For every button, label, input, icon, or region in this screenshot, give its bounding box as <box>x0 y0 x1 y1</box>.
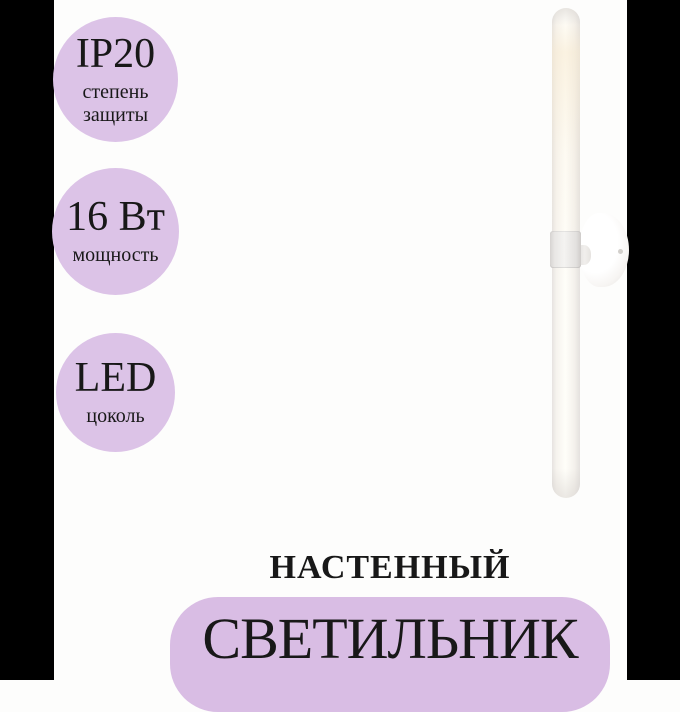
ip-rating-caption-line1: степень <box>83 81 149 103</box>
lamp-mount-screw <box>618 249 623 254</box>
badge-power: 16 Вт мощность <box>52 168 179 295</box>
lamp-tube-holder-collar <box>550 231 581 268</box>
power-caption: мощность <box>73 244 159 266</box>
badge-ip-rating: IP20 степень защиты <box>53 17 178 142</box>
power-value: 16 Вт <box>66 196 165 239</box>
lamp-wall-mount-disc <box>579 213 629 287</box>
product-type-label: НАСТЕННЫЙ <box>170 549 610 587</box>
left-pillarbox-bar <box>0 0 54 680</box>
socket-type-caption: цоколь <box>86 405 144 427</box>
socket-type-value: LED <box>75 357 157 400</box>
badge-socket-type: LED цоколь <box>56 333 175 452</box>
lamp-light-tube <box>552 8 580 498</box>
right-pillarbox-bar <box>627 0 680 680</box>
product-name-label: СВЕТИЛЬНИК <box>170 597 610 668</box>
ip-rating-value: IP20 <box>76 33 155 76</box>
product-card: { "colors": { "badge_bg": "#dcc3e7", "ba… <box>0 0 680 680</box>
ip-rating-caption-line2: защиты <box>83 104 148 126</box>
product-name-banner: СВЕТИЛЬНИК <box>170 597 610 712</box>
lamp-mount-bracket <box>575 245 591 265</box>
